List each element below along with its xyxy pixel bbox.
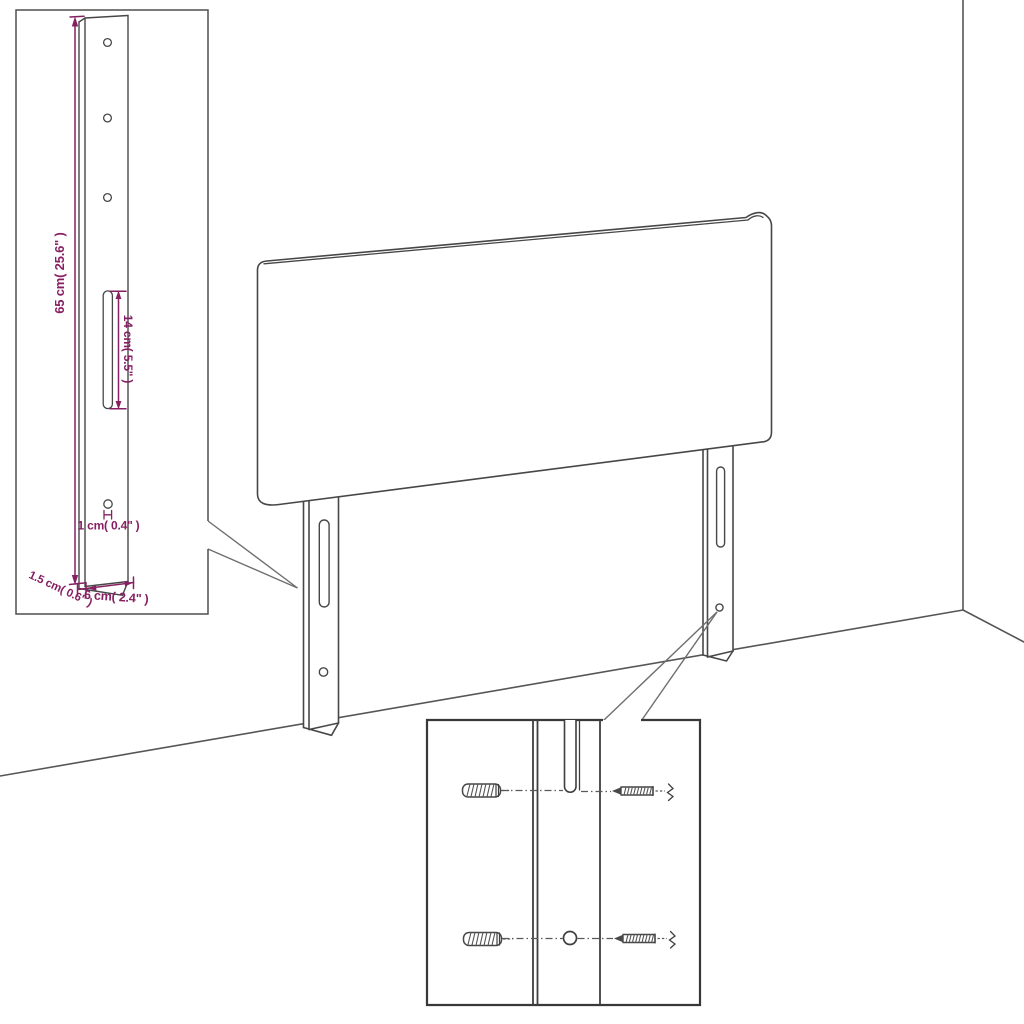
hole-label: 1 cm( 0.4" ) (78, 519, 140, 533)
floor-line-right (963, 610, 1024, 642)
detail-leg-hole-3 (104, 194, 112, 202)
detail-leg-slot (103, 291, 112, 409)
detail-leg-hole-4 (104, 500, 112, 508)
callout-left-leg (208, 521, 298, 588)
callout-hardware (604, 612, 718, 721)
detail-leg-hole-2 (104, 114, 112, 122)
headboard-front-face (258, 213, 772, 505)
slot-label: 14 cm( 5.5" ) (121, 315, 135, 384)
assembly-diagram: 65 cm( 25.6" ) 14 cm( 5.5" ) 1 cm( 0.4" … (0, 0, 1024, 1024)
left-leg-hole (319, 668, 327, 676)
detail-box-hardware (427, 720, 700, 1005)
detail-box-leg: 65 cm( 25.6" ) 14 cm( 5.5" ) 1 cm( 0.4" … (16, 10, 208, 614)
detail-leg-hole-1 (104, 39, 112, 47)
left-leg-slot (319, 520, 329, 607)
height-label: 65 cm( 25.6" ) (52, 232, 67, 313)
detail-leg-drawing (79, 16, 128, 596)
headboard-left-leg (304, 493, 339, 735)
right-leg-slot (717, 467, 725, 547)
right-leg-hole (716, 604, 723, 611)
diagram-canvas: 65 cm( 25.6" ) 14 cm( 5.5" ) 1 cm( 0.4" … (0, 0, 1024, 1024)
headboard-right-leg (703, 440, 733, 661)
headboard-panel (258, 213, 772, 505)
